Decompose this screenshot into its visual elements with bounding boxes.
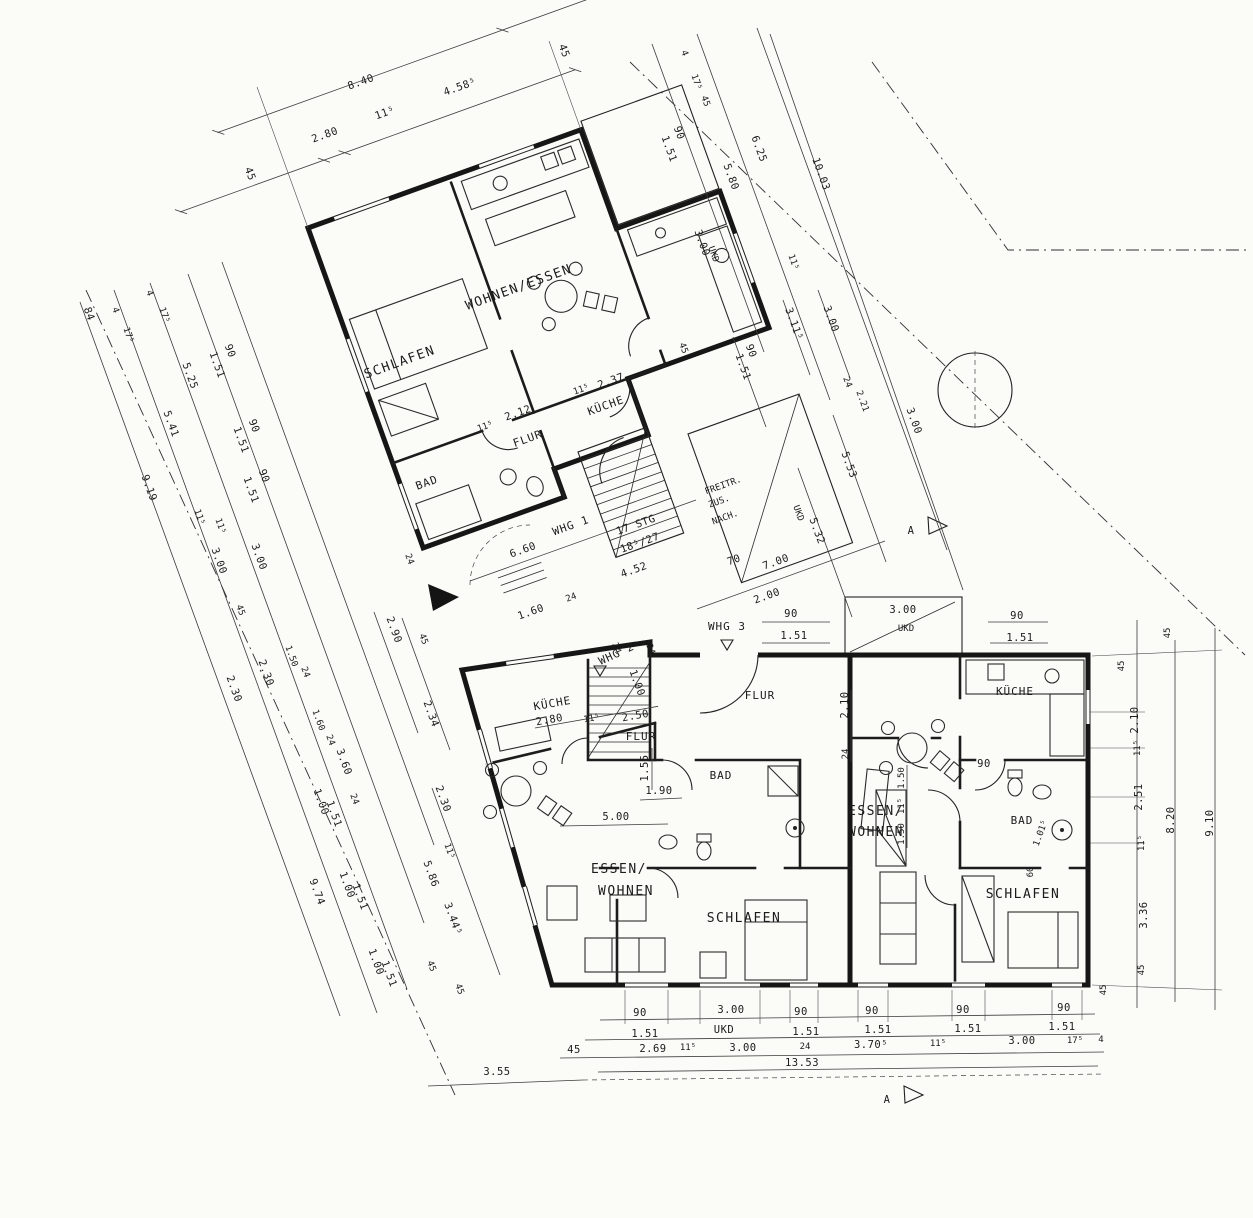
room-label-essen-whg2-1: ESSEN/ bbox=[591, 862, 647, 877]
room-label-essen-whg3-1: ESSEN/ bbox=[848, 804, 904, 819]
dim-label: 17⁵ bbox=[1067, 1036, 1083, 1046]
dim-label: 5.00 bbox=[602, 811, 629, 823]
dim-label: 9.10 bbox=[1204, 809, 1216, 836]
dim-label: 3.11⁵ bbox=[782, 306, 805, 342]
dim-label: 2.00 bbox=[752, 586, 782, 607]
dim-label: 11⁵ bbox=[441, 842, 456, 861]
dim-label: 24 bbox=[840, 376, 853, 390]
floor-plan-drawing: WOHNEN/ESSEN SCHLAFEN KÜCHE FLUR BAD WHG… bbox=[0, 0, 1253, 1218]
dim-label: 45 bbox=[1099, 985, 1109, 996]
room-label-wohnen-essen-whg1: WOHNEN/ESSEN bbox=[464, 262, 574, 314]
freitr-note-1: FREITR. bbox=[704, 475, 743, 497]
dim-label: 3.36 bbox=[1138, 901, 1150, 928]
dim-label: 5.25 bbox=[180, 361, 201, 391]
dim-label: 1.51 bbox=[631, 1028, 658, 1040]
apartment-label-whg3: WHG 3 bbox=[708, 620, 746, 633]
dim-label: 24 bbox=[298, 666, 311, 680]
dim-label: 1.60 bbox=[516, 602, 546, 623]
dim-label: 24 bbox=[841, 749, 851, 760]
dim-label: 17⁵ bbox=[120, 326, 135, 345]
dim-label: 45 bbox=[567, 1044, 581, 1056]
dim-label: 1.50 bbox=[897, 823, 907, 845]
dim-label: 3.00 bbox=[889, 604, 916, 616]
dim-label: 10.03 bbox=[809, 156, 832, 192]
dim-label: 3.00 bbox=[1008, 1035, 1035, 1047]
dim-label: 2.34 bbox=[421, 699, 442, 729]
dim-label: 45 bbox=[452, 983, 465, 997]
dim-label: 8.40 bbox=[346, 72, 376, 93]
dim-label: 3.55 bbox=[483, 1066, 510, 1078]
dim-label: 45 bbox=[424, 960, 437, 974]
interior-walls-whg1 bbox=[310, 135, 696, 547]
dim-label: 24 bbox=[402, 553, 415, 567]
dim-label: 24 bbox=[323, 734, 336, 748]
dim-label: 1.51 bbox=[780, 630, 807, 642]
dim-label: 11⁵ bbox=[212, 517, 227, 536]
dim-label: 9.74 bbox=[307, 877, 328, 907]
dim-label: 1.51 bbox=[231, 425, 252, 455]
dim-label: 2.69 bbox=[639, 1043, 666, 1055]
dim-label: 90 bbox=[256, 468, 272, 485]
dim-label: 5.41 bbox=[161, 409, 182, 439]
section-label-bottom: A bbox=[884, 1094, 891, 1106]
section-marker-bottom bbox=[904, 1086, 923, 1103]
dim-label: 24 bbox=[565, 592, 579, 605]
dim-label: 17⁵ bbox=[688, 73, 703, 92]
dim-label: 11⁵ bbox=[785, 253, 800, 272]
dim-label: 3.00 bbox=[821, 304, 842, 334]
porch-steps bbox=[498, 562, 547, 593]
dim-label: 90 bbox=[784, 608, 798, 620]
dim-label: 90 bbox=[865, 1005, 879, 1017]
room-label-essen-whg3-2: WOHNEN bbox=[848, 825, 904, 840]
dim-label: 3.44⁵ bbox=[441, 901, 464, 937]
dim-label: 6.60 bbox=[508, 540, 538, 561]
whg2-entry-arrow bbox=[594, 666, 606, 676]
dim-label: 90 bbox=[956, 1004, 970, 1016]
labels: WOHNEN/ESSEN SCHLAFEN KÜCHE FLUR BAD WHG… bbox=[81, 43, 1216, 1106]
dim-label: 13.53 bbox=[785, 1057, 819, 1069]
dim-label: 3.70⁵ bbox=[854, 1039, 888, 1051]
dim-label: 2.10 bbox=[839, 691, 851, 718]
dim-label: UKD bbox=[714, 1024, 734, 1036]
dim-label: 90 bbox=[633, 1007, 647, 1019]
room-label-schlafen-whg3: SCHLAFEN bbox=[986, 887, 1061, 902]
dim-label: 7.00 bbox=[761, 552, 791, 573]
terrace-hatch bbox=[581, 85, 719, 225]
dim-label: 2.80 bbox=[310, 125, 340, 146]
dim-label: 60 bbox=[1026, 867, 1036, 878]
dim-label: 4 bbox=[109, 306, 120, 315]
whg3-entry-arrow bbox=[721, 640, 733, 650]
room-label-flur-whg3: FLUR bbox=[745, 689, 776, 702]
room-label-bad-whg2: BAD bbox=[710, 769, 733, 782]
dim-label: 1.50 bbox=[282, 644, 299, 668]
dim-label: 2.50 bbox=[621, 708, 650, 725]
dim-label: 5.53 bbox=[839, 450, 860, 480]
floor-plan-sheet: WOHNEN/ESSEN SCHLAFEN KÜCHE FLUR BAD WHG… bbox=[0, 0, 1253, 1218]
dim-label: 3.00 bbox=[249, 542, 270, 572]
dim-label: 17⁵ bbox=[156, 306, 171, 325]
dim-label: 11⁵ bbox=[1137, 835, 1147, 851]
dim-label: 45 bbox=[676, 342, 689, 356]
dim-label: 45 bbox=[1137, 965, 1147, 976]
dim-label: 1.51 bbox=[207, 350, 228, 380]
dim-label: 11⁵ bbox=[1133, 740, 1143, 756]
dim-label: 90 bbox=[222, 343, 238, 360]
dim-label: 24 bbox=[347, 793, 360, 807]
freitr-note-3: NACH. bbox=[711, 509, 740, 528]
dim-label: 2.12 bbox=[503, 403, 533, 424]
dim-label: 45 bbox=[416, 633, 429, 647]
section-label-top: A bbox=[908, 525, 915, 537]
dim-label: 1.01⁵ bbox=[1032, 819, 1051, 848]
dim-label: 11⁵ bbox=[583, 713, 601, 726]
dim-label: 2.21 bbox=[853, 389, 870, 413]
dim-label: 90 bbox=[1010, 610, 1024, 622]
dim-label: 3.00 bbox=[717, 1004, 744, 1016]
dim-label: 90 bbox=[246, 418, 262, 435]
dim-label: 2.37 bbox=[596, 371, 626, 392]
dim-label: 11⁵ bbox=[572, 383, 591, 398]
dim-label: 11⁵ bbox=[680, 1043, 696, 1053]
dim-label: 2.90 bbox=[384, 615, 405, 645]
dim-label: 3.00 bbox=[209, 546, 230, 576]
dim-label: 9.19 bbox=[139, 473, 160, 503]
room-label-flur-whg2: FLUR bbox=[626, 730, 657, 743]
dim-label: 90 bbox=[671, 125, 687, 142]
dim-label: 2.51 bbox=[1133, 783, 1145, 810]
dim-label: 2.10 bbox=[1129, 706, 1141, 733]
staircase-17stg bbox=[578, 428, 684, 558]
dim-label: 45 bbox=[1117, 661, 1127, 672]
room-label-schlafen-whg2: SCHLAFEN bbox=[707, 911, 782, 926]
dim-label: 11⁵ bbox=[373, 104, 396, 122]
dim-label: 45 bbox=[242, 166, 258, 183]
dim-label: 45 bbox=[698, 95, 711, 109]
dim-label: 1.51 bbox=[1048, 1021, 1075, 1033]
dim-label: 5.32 bbox=[807, 516, 828, 546]
dim-label: 1.51 bbox=[241, 475, 262, 505]
room-label-essen-whg2-2: WOHNEN bbox=[598, 884, 654, 899]
dim-label: 1.51 bbox=[1006, 632, 1033, 644]
dim-label: 3.00 bbox=[729, 1042, 756, 1054]
dim-label: 1.50 bbox=[897, 767, 907, 789]
dim-label: 90 bbox=[977, 758, 991, 770]
dim-label: 11⁵ bbox=[897, 798, 907, 814]
dim-label: 5.86 bbox=[421, 859, 442, 889]
dim-label: 3.60 bbox=[334, 747, 355, 777]
dim-label: 4.52 bbox=[619, 560, 649, 581]
dim-label: 11⁵ bbox=[476, 420, 495, 435]
dim-label: 45 bbox=[556, 43, 572, 60]
dim-label: 8.20 bbox=[1165, 806, 1177, 833]
dim-label: 2.80 bbox=[535, 712, 564, 729]
dim-label: UKD bbox=[898, 624, 914, 634]
dim-label: 1.55 bbox=[639, 754, 651, 781]
dim-label: 1.51 bbox=[792, 1026, 819, 1038]
dim-label: 1.90 bbox=[645, 785, 672, 797]
dim-label: 3.00 bbox=[904, 406, 925, 436]
site-boundary-lines bbox=[86, 62, 1250, 1103]
dim-label: UKD bbox=[790, 504, 805, 523]
dim-label: 4 bbox=[143, 289, 154, 298]
dim-label: 24 bbox=[800, 1042, 811, 1052]
dim-label: 6.25 bbox=[749, 134, 770, 164]
dim-label: 2.30 bbox=[224, 674, 245, 704]
section-marker-top bbox=[928, 517, 947, 534]
room-label-bad-whg1: BAD bbox=[414, 473, 440, 493]
dim-label: 45 bbox=[1163, 628, 1173, 639]
dim-label: 90 bbox=[794, 1006, 808, 1018]
dim-label: 1.51 bbox=[864, 1024, 891, 1036]
room-label-bad-whg3: BAD bbox=[1011, 814, 1034, 827]
room-label-kueche-whg3: KÜCHE bbox=[996, 685, 1034, 698]
dim-label: 4.58⁵ bbox=[442, 76, 478, 99]
apartment-label-whg1: WHG 1 bbox=[551, 513, 591, 538]
dim-label: 90 bbox=[1057, 1002, 1071, 1014]
dim-label: 4 bbox=[678, 49, 689, 58]
room-label-flur-whg1: FLUR bbox=[511, 427, 544, 450]
room-label-kueche-whg1: KÜCHE bbox=[586, 393, 626, 418]
north-arrow bbox=[428, 584, 459, 611]
dim-label: 4 bbox=[1098, 1035, 1103, 1045]
dim-label: 2.30 bbox=[256, 658, 277, 688]
room-label-kueche-whg2: KÜCHE bbox=[532, 694, 572, 713]
dim-label: 11⁵ bbox=[930, 1039, 946, 1049]
dim-label: 70 bbox=[726, 552, 743, 568]
dim-label: 1.51 bbox=[954, 1023, 981, 1035]
